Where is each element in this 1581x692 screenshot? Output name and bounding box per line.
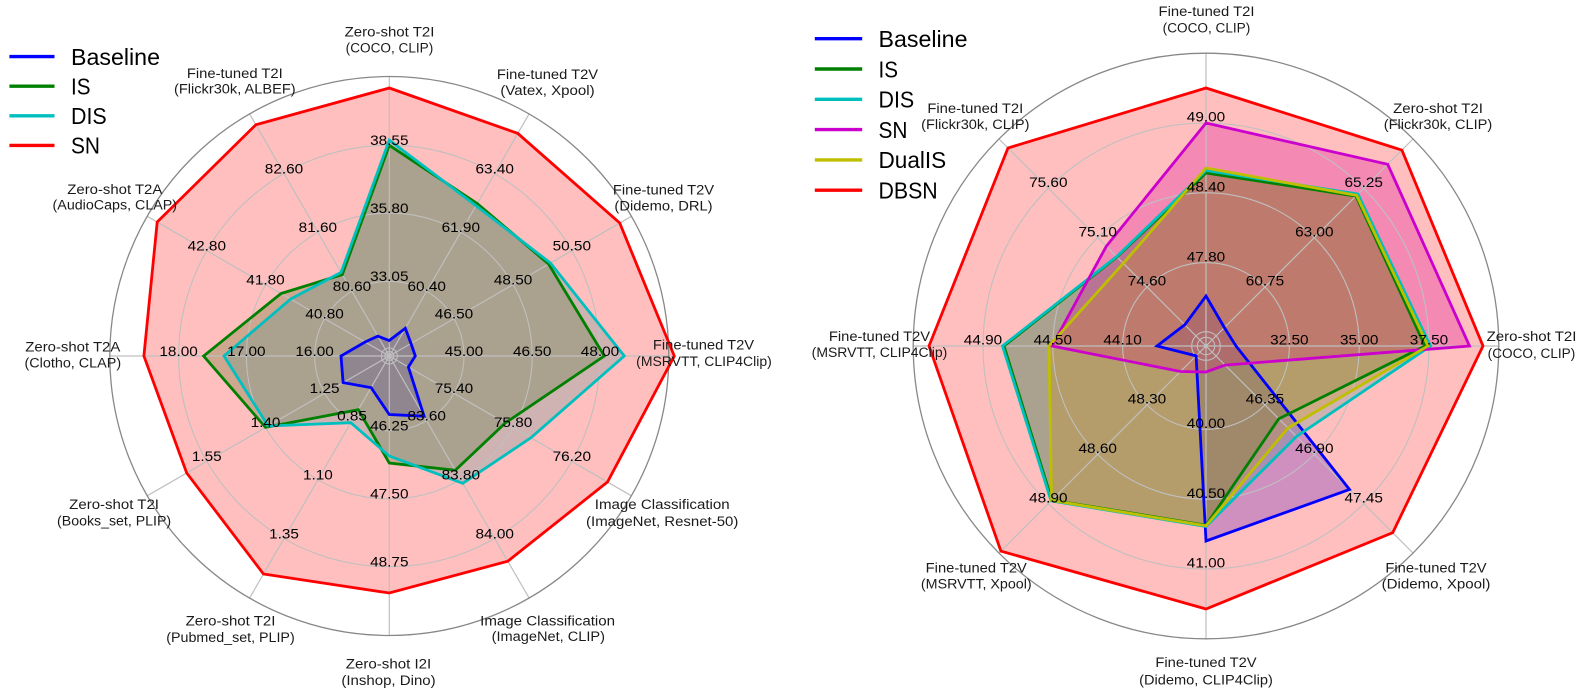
svg-text:48.30: 48.30 xyxy=(1128,392,1166,407)
svg-text:Fine-tuned T2V: Fine-tuned T2V xyxy=(829,329,930,344)
svg-text:(COCO, CLIP): (COCO, CLIP) xyxy=(346,40,434,55)
svg-text:38.55: 38.55 xyxy=(370,133,408,148)
svg-text:SN: SN xyxy=(879,117,908,143)
svg-text:DualIS: DualIS xyxy=(879,147,947,173)
svg-text:Image Classification: Image Classification xyxy=(595,497,730,512)
svg-text:82.60: 82.60 xyxy=(265,161,303,176)
svg-text:Zero-shot T2I: Zero-shot T2I xyxy=(69,497,159,512)
svg-text:Zero-shot I2I: Zero-shot I2I xyxy=(346,657,432,672)
svg-text:(Didemo, DRL): (Didemo, DRL) xyxy=(614,199,712,214)
svg-text:(Flickr30k, CLIP): (Flickr30k, CLIP) xyxy=(921,117,1029,132)
svg-text:81.60: 81.60 xyxy=(299,220,337,235)
svg-text:DIS: DIS xyxy=(879,87,915,113)
svg-text:47.80: 47.80 xyxy=(1187,249,1225,264)
svg-text:(Vatex, Xpool): (Vatex, Xpool) xyxy=(500,83,594,98)
svg-text:48.75: 48.75 xyxy=(370,555,408,570)
svg-text:Zero-shot T2I: Zero-shot T2I xyxy=(345,24,435,39)
svg-text:IS: IS xyxy=(71,74,91,100)
svg-text:63.00: 63.00 xyxy=(1295,224,1333,239)
svg-text:SN: SN xyxy=(71,133,100,159)
svg-text:0.85: 0.85 xyxy=(337,409,367,424)
svg-text:Fine-tuned T2V: Fine-tuned T2V xyxy=(1155,655,1256,670)
svg-text:1.40: 1.40 xyxy=(251,415,281,430)
svg-text:48.90: 48.90 xyxy=(1029,490,1067,505)
svg-text:44.90: 44.90 xyxy=(964,333,1002,348)
svg-text:Fine-tuned T2V: Fine-tuned T2V xyxy=(1385,560,1486,575)
svg-text:16.00: 16.00 xyxy=(295,344,333,359)
svg-text:(AudioCaps, CLAP): (AudioCaps, CLAP) xyxy=(53,198,178,213)
svg-text:75.60: 75.60 xyxy=(1029,175,1067,190)
svg-text:(Inshop, Dino): (Inshop, Dino) xyxy=(341,673,435,688)
svg-text:(ImageNet, Resnet-50): (ImageNet, Resnet-50) xyxy=(586,514,738,529)
svg-text:32.50: 32.50 xyxy=(1270,333,1308,348)
svg-text:35.80: 35.80 xyxy=(370,201,408,216)
svg-text:42.80: 42.80 xyxy=(188,239,226,254)
svg-text:48.00: 48.00 xyxy=(581,344,619,359)
svg-text:37.50: 37.50 xyxy=(1410,333,1448,348)
svg-text:Fine-tuned T2V: Fine-tuned T2V xyxy=(497,67,598,82)
svg-text:(Didemo, Xpool): (Didemo, Xpool) xyxy=(1382,576,1491,591)
svg-text:Fine-tuned T2I: Fine-tuned T2I xyxy=(187,66,283,81)
svg-text:48.50: 48.50 xyxy=(494,272,532,287)
svg-text:Baseline: Baseline xyxy=(71,44,160,70)
svg-text:DBSN: DBSN xyxy=(879,178,938,204)
svg-text:(Didemo, CLIP4Clip): (Didemo, CLIP4Clip) xyxy=(1139,672,1273,687)
svg-text:76.20: 76.20 xyxy=(553,449,591,464)
svg-text:75.10: 75.10 xyxy=(1079,224,1117,239)
svg-text:1.25: 1.25 xyxy=(310,381,340,396)
svg-text:47.50: 47.50 xyxy=(370,487,408,502)
svg-text:18.00: 18.00 xyxy=(159,344,197,359)
svg-text:48.40: 48.40 xyxy=(1187,180,1225,195)
svg-text:75.80: 75.80 xyxy=(494,415,532,430)
svg-text:63.40: 63.40 xyxy=(476,161,514,176)
svg-text:45.00: 45.00 xyxy=(445,344,483,359)
svg-text:17.00: 17.00 xyxy=(227,344,265,359)
svg-text:49.00: 49.00 xyxy=(1187,110,1225,125)
svg-text:74.60: 74.60 xyxy=(1128,274,1166,289)
svg-text:(ImageNet, CLIP): (ImageNet, CLIP) xyxy=(492,629,605,644)
svg-text:40.00: 40.00 xyxy=(1187,416,1225,431)
svg-text:DIS: DIS xyxy=(71,103,107,129)
svg-text:(MSRVTT, Xpool): (MSRVTT, Xpool) xyxy=(921,576,1032,591)
svg-text:60.75: 60.75 xyxy=(1246,274,1284,289)
svg-text:Fine-tuned T2V: Fine-tuned T2V xyxy=(653,338,754,353)
svg-text:(COCO, CLIP): (COCO, CLIP) xyxy=(1163,20,1251,35)
svg-text:61.90: 61.90 xyxy=(442,220,480,235)
svg-text:Baseline: Baseline xyxy=(879,26,968,52)
svg-text:75.40: 75.40 xyxy=(435,381,473,396)
svg-text:Zero-shot T2I: Zero-shot T2I xyxy=(1393,101,1483,116)
svg-text:40.80: 40.80 xyxy=(305,306,343,321)
svg-text:35.00: 35.00 xyxy=(1340,333,1378,348)
svg-text:Fine-tuned T2I: Fine-tuned T2I xyxy=(1159,4,1255,19)
svg-text:(Flickr30k, ALBEF): (Flickr30k, ALBEF) xyxy=(174,81,296,96)
svg-text:Zero-shot T2I: Zero-shot T2I xyxy=(186,614,276,629)
svg-text:(Flickr30k, CLIP): (Flickr30k, CLIP) xyxy=(1384,117,1492,132)
svg-text:Fine-tuned T2V: Fine-tuned T2V xyxy=(613,183,714,198)
svg-text:(MSRVTT, CLIP4Clip): (MSRVTT, CLIP4Clip) xyxy=(636,354,772,369)
svg-text:60.40: 60.40 xyxy=(408,279,446,294)
svg-text:1.35: 1.35 xyxy=(269,526,299,541)
svg-text:46.35: 46.35 xyxy=(1246,392,1284,407)
svg-text:50.50: 50.50 xyxy=(553,239,591,254)
svg-text:65.25: 65.25 xyxy=(1345,175,1383,190)
svg-text:Fine-tuned T2V: Fine-tuned T2V xyxy=(926,560,1027,575)
svg-text:41.80: 41.80 xyxy=(246,272,284,287)
svg-text:48.60: 48.60 xyxy=(1079,441,1117,456)
svg-text:(Pubmed_set, PLIP): (Pubmed_set, PLIP) xyxy=(166,630,294,645)
svg-text:33.05: 33.05 xyxy=(370,269,408,284)
svg-text:46.25: 46.25 xyxy=(370,419,408,434)
svg-text:83.80: 83.80 xyxy=(442,468,480,483)
svg-text:Fine-tuned T2I: Fine-tuned T2I xyxy=(927,101,1023,116)
svg-text:1.55: 1.55 xyxy=(192,449,222,464)
svg-text:Image Classification: Image Classification xyxy=(480,614,615,629)
svg-text:(Books_set, PLIP): (Books_set, PLIP) xyxy=(57,514,171,529)
svg-text:40.50: 40.50 xyxy=(1187,486,1225,501)
svg-text:(MSRVTT, CLIP4Clip): (MSRVTT, CLIP4Clip) xyxy=(812,345,948,360)
svg-text:Zero-shot T2A: Zero-shot T2A xyxy=(67,182,162,197)
svg-text:46.90: 46.90 xyxy=(1295,441,1333,456)
svg-text:83.60: 83.60 xyxy=(408,409,446,424)
svg-text:(COCO, CLIP): (COCO, CLIP) xyxy=(1488,346,1576,361)
svg-text:IS: IS xyxy=(879,56,899,82)
svg-text:1.10: 1.10 xyxy=(303,468,333,483)
svg-text:44.10: 44.10 xyxy=(1103,333,1141,348)
svg-text:46.50: 46.50 xyxy=(513,344,551,359)
svg-text:47.45: 47.45 xyxy=(1345,490,1383,505)
svg-text:84.00: 84.00 xyxy=(476,526,514,541)
svg-text:80.60: 80.60 xyxy=(333,279,371,294)
svg-text:Zero-shot T2I: Zero-shot T2I xyxy=(1487,329,1577,344)
svg-text:41.00: 41.00 xyxy=(1187,556,1225,571)
svg-text:(Clotho, CLAP): (Clotho, CLAP) xyxy=(25,356,122,371)
svg-text:44.50: 44.50 xyxy=(1034,333,1072,348)
svg-text:Zero-shot T2A: Zero-shot T2A xyxy=(25,340,120,355)
svg-text:46.50: 46.50 xyxy=(435,306,473,321)
